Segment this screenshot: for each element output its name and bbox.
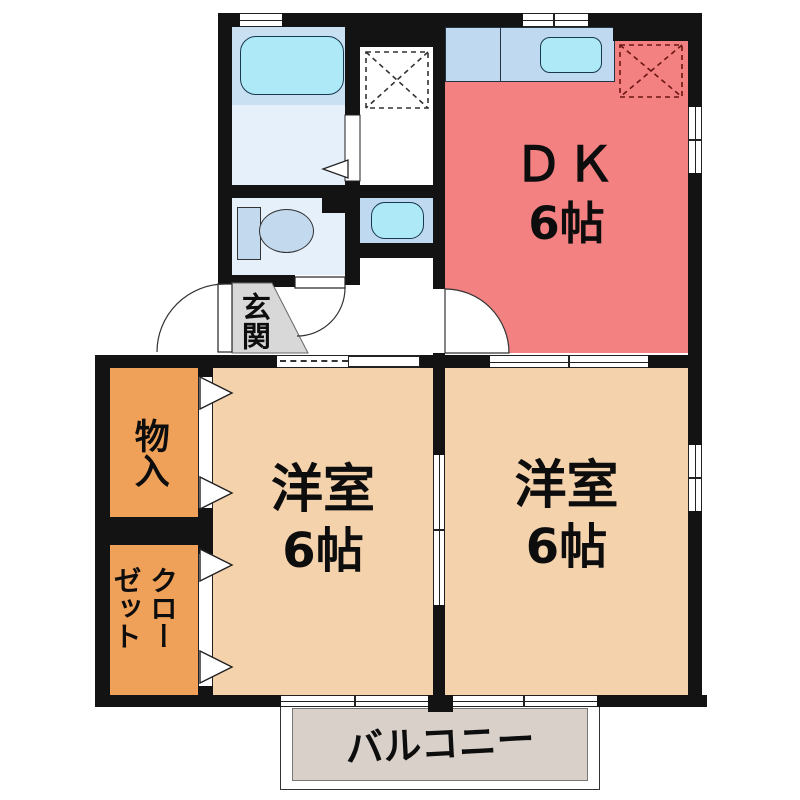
front-door-leaf xyxy=(218,284,232,352)
dk-size: 6帖 xyxy=(528,200,604,249)
washer-pan-symbol xyxy=(366,52,428,108)
western-right-size: 6帖 xyxy=(526,522,607,574)
storage-door-triangle-1 xyxy=(200,377,232,409)
toilet-door-leaf xyxy=(295,277,345,288)
floor-plan: ＤＫ 6帖 洋室 6帖 洋室 6帖 物入 クローゼット 玄関 バルコニー xyxy=(0,0,800,800)
dk-label: ＤＫ 6帖 xyxy=(445,140,688,248)
range-area-symbol xyxy=(620,45,682,97)
western-left-size: 6帖 xyxy=(282,526,363,578)
dk-doorway-gap xyxy=(433,289,445,353)
western-left-label: 洋室 6帖 xyxy=(213,462,433,578)
western-right-label: 洋室 6帖 xyxy=(445,458,688,574)
closet-door-triangle-2 xyxy=(200,651,232,683)
bath-door-triangle xyxy=(323,160,348,178)
symbol-overlay xyxy=(0,0,800,800)
dk-door-swing xyxy=(445,289,509,353)
toilet-door-arc xyxy=(297,288,345,336)
closet-label: クローゼット xyxy=(104,558,180,658)
western-right-name: 洋室 xyxy=(514,458,618,514)
front-door-arc xyxy=(157,284,225,352)
entrance-label: 玄関 xyxy=(238,286,269,356)
western-left-name: 洋室 xyxy=(271,462,375,518)
dk-name: ＤＫ xyxy=(514,140,618,192)
storage-label: 物入 xyxy=(129,408,167,498)
